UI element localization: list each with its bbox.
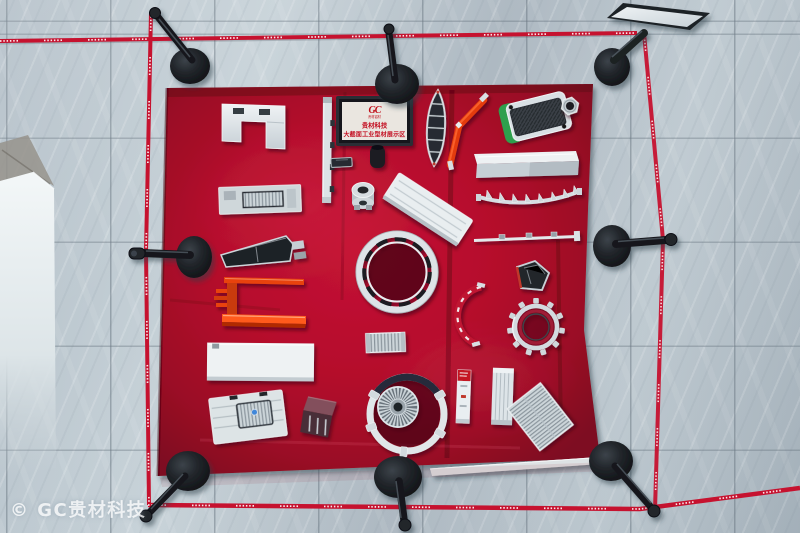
profile-round-tube (352, 183, 374, 211)
sign-subtitle: 大截面工业型材展示区 (343, 131, 405, 139)
profile-ribbed-strip (491, 368, 514, 426)
profile-slotted-block (219, 185, 302, 215)
profile-flat-panel-long (207, 343, 314, 382)
profile-heatsink-round (377, 386, 419, 428)
profile-labeled-strip (456, 370, 471, 423)
sign-title: 贵材科技 (362, 121, 388, 130)
profile-ring-large (356, 231, 438, 313)
scene-svg: GC 贵材铝材 贵材科技 大截面工业型材展示区 (0, 0, 800, 533)
sign-logo-subtitle: 贵材铝材 (368, 114, 382, 119)
watermark: © GC贵材科技 (10, 496, 146, 522)
profile-ribbed-base (208, 390, 287, 445)
wall-panel-face (0, 172, 56, 477)
profile-mini-heatsink (366, 332, 406, 352)
white-wall-panel (0, 135, 56, 477)
exhibition-photo: GC 贵材铝材 贵材科技 大截面工业型材展示区 (0, 0, 800, 533)
profile-box-beam (474, 151, 579, 178)
profile-dark-clip (331, 157, 352, 167)
